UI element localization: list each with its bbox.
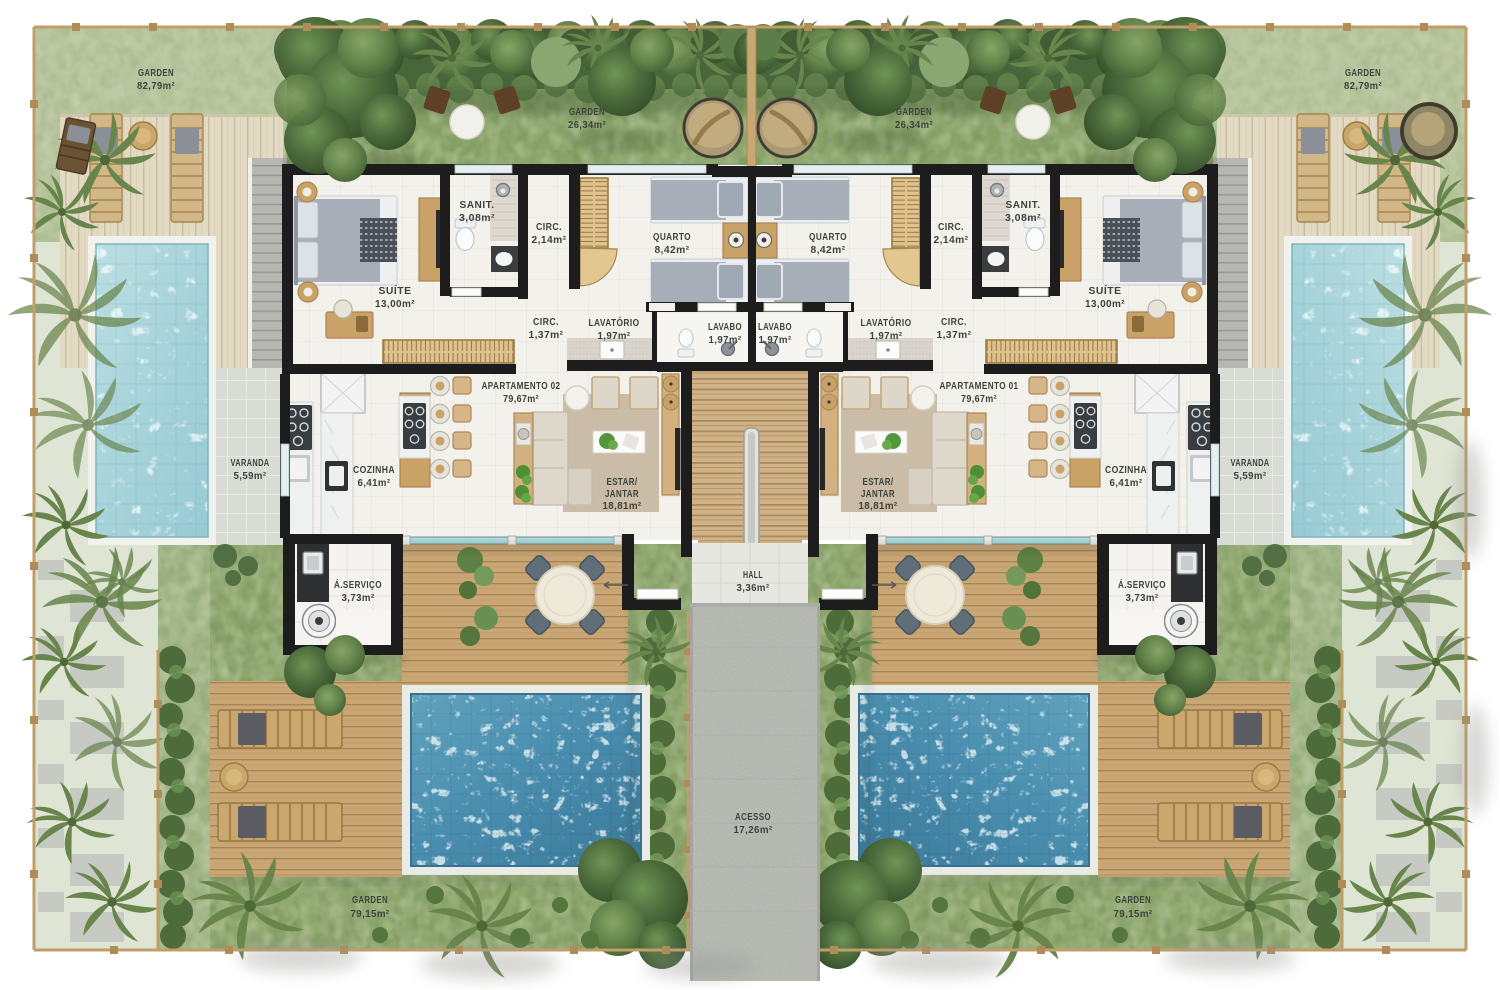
svg-text:5,59m²: 5,59m² [234,471,267,482]
svg-text:GARDEN: GARDEN [138,67,174,79]
svg-text:JANTAR: JANTAR [605,488,639,500]
svg-text:VARANDA: VARANDA [231,457,270,469]
svg-text:3,08m²: 3,08m² [1005,213,1041,224]
svg-text:8,42m²: 8,42m² [655,245,690,256]
svg-text:HALL: HALL [743,569,763,581]
svg-text:CIRC.: CIRC. [938,221,964,233]
svg-text:CIRC.: CIRC. [536,221,562,233]
svg-text:Á.SERVIÇO: Á.SERVIÇO [1118,578,1166,591]
svg-text:LAVATÓRIO: LAVATÓRIO [589,316,640,329]
svg-text:3,73m²: 3,73m² [342,593,375,604]
svg-text:3,08m²: 3,08m² [459,213,495,224]
svg-text:6,41m²: 6,41m² [1110,478,1143,489]
svg-text:APARTAMENTO 02: APARTAMENTO 02 [482,380,561,392]
svg-text:GARDEN: GARDEN [569,106,605,118]
svg-text:QUARTO: QUARTO [809,231,847,243]
svg-text:ESTAR/: ESTAR/ [607,476,638,488]
svg-text:13,00m²: 13,00m² [1085,299,1125,310]
svg-text:6,41m²: 6,41m² [358,478,391,489]
svg-text:VARANDA: VARANDA [1231,457,1270,469]
svg-text:79,67m²: 79,67m² [961,394,997,405]
svg-text:1,97m²: 1,97m² [598,331,631,342]
svg-text:79,67m²: 79,67m² [503,394,539,405]
svg-text:5,59m²: 5,59m² [1234,471,1267,482]
svg-text:82,79m²: 82,79m² [1344,81,1382,92]
svg-text:26,34m²: 26,34m² [895,120,933,131]
svg-text:1,97m²: 1,97m² [759,335,792,346]
svg-text:1,97m²: 1,97m² [709,335,742,346]
svg-text:1,37m²: 1,37m² [529,330,564,341]
svg-text:79,15m²: 79,15m² [351,909,390,920]
svg-text:CIRC.: CIRC. [533,316,559,328]
svg-text:2,14m²: 2,14m² [532,235,567,246]
svg-text:COZINHA: COZINHA [353,464,395,476]
svg-text:GARDEN: GARDEN [1345,67,1381,79]
svg-text:GARDEN: GARDEN [896,106,932,118]
svg-text:QUARTO: QUARTO [653,231,691,243]
svg-text:LAVABO: LAVABO [758,321,792,333]
svg-text:13,00m²: 13,00m² [375,299,415,310]
svg-text:1,97m²: 1,97m² [870,331,903,342]
svg-text:SANIT.: SANIT. [460,199,495,211]
svg-text:26,34m²: 26,34m² [568,120,606,131]
svg-text:ACESSO: ACESSO [735,811,771,823]
svg-text:COZINHA: COZINHA [1105,464,1147,476]
svg-text:SANIT.: SANIT. [1006,199,1041,211]
svg-text:3,36m²: 3,36m² [737,583,770,594]
svg-text:8,42m²: 8,42m² [811,245,846,256]
svg-text:3,73m²: 3,73m² [1126,593,1159,604]
svg-text:GARDEN: GARDEN [352,894,388,906]
svg-text:LAVABO: LAVABO [708,321,742,333]
svg-text:17,26m²: 17,26m² [734,825,773,836]
svg-text:ESTAR/: ESTAR/ [863,476,894,488]
svg-text:82,79m²: 82,79m² [137,81,175,92]
svg-text:JANTAR: JANTAR [861,488,895,500]
svg-text:18,81m²: 18,81m² [603,501,642,512]
svg-text:LAVATÓRIO: LAVATÓRIO [861,316,912,329]
svg-text:18,81m²: 18,81m² [859,501,898,512]
svg-text:79,15m²: 79,15m² [1114,909,1153,920]
svg-text:1,37m²: 1,37m² [937,330,972,341]
svg-text:Á.SERVIÇO: Á.SERVIÇO [334,578,382,591]
svg-text:SUÍTE: SUÍTE [379,284,412,297]
svg-text:APARTAMENTO 01: APARTAMENTO 01 [940,380,1019,392]
svg-text:SUÍTE: SUÍTE [1089,284,1122,297]
svg-text:CIRC.: CIRC. [941,316,967,328]
svg-text:GARDEN: GARDEN [1115,894,1151,906]
svg-text:2,14m²: 2,14m² [934,235,969,246]
